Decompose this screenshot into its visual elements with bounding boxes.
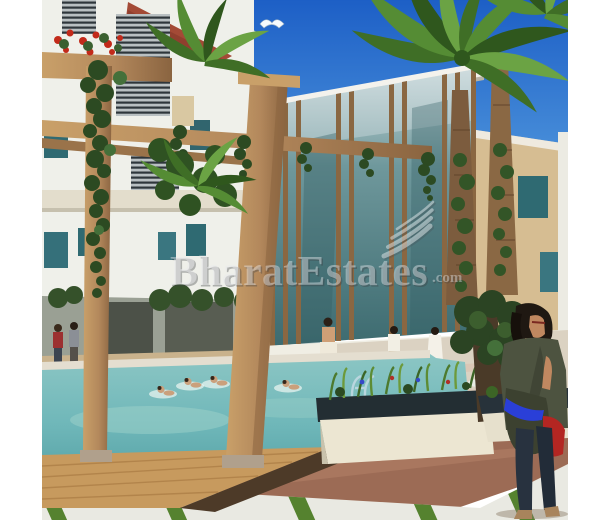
louver-panel	[62, 0, 96, 34]
left-white-margin	[0, 0, 42, 520]
window	[44, 232, 68, 268]
watermark-text: BharatEstates	[170, 249, 428, 295]
watermark-suffix: .com	[432, 270, 463, 286]
property-rendering-image: BharatEstates BharatEstates .com .com	[0, 0, 604, 520]
window	[518, 176, 548, 218]
right-white-margin	[568, 0, 604, 520]
glasses	[532, 322, 545, 323]
left-leg	[516, 428, 535, 512]
